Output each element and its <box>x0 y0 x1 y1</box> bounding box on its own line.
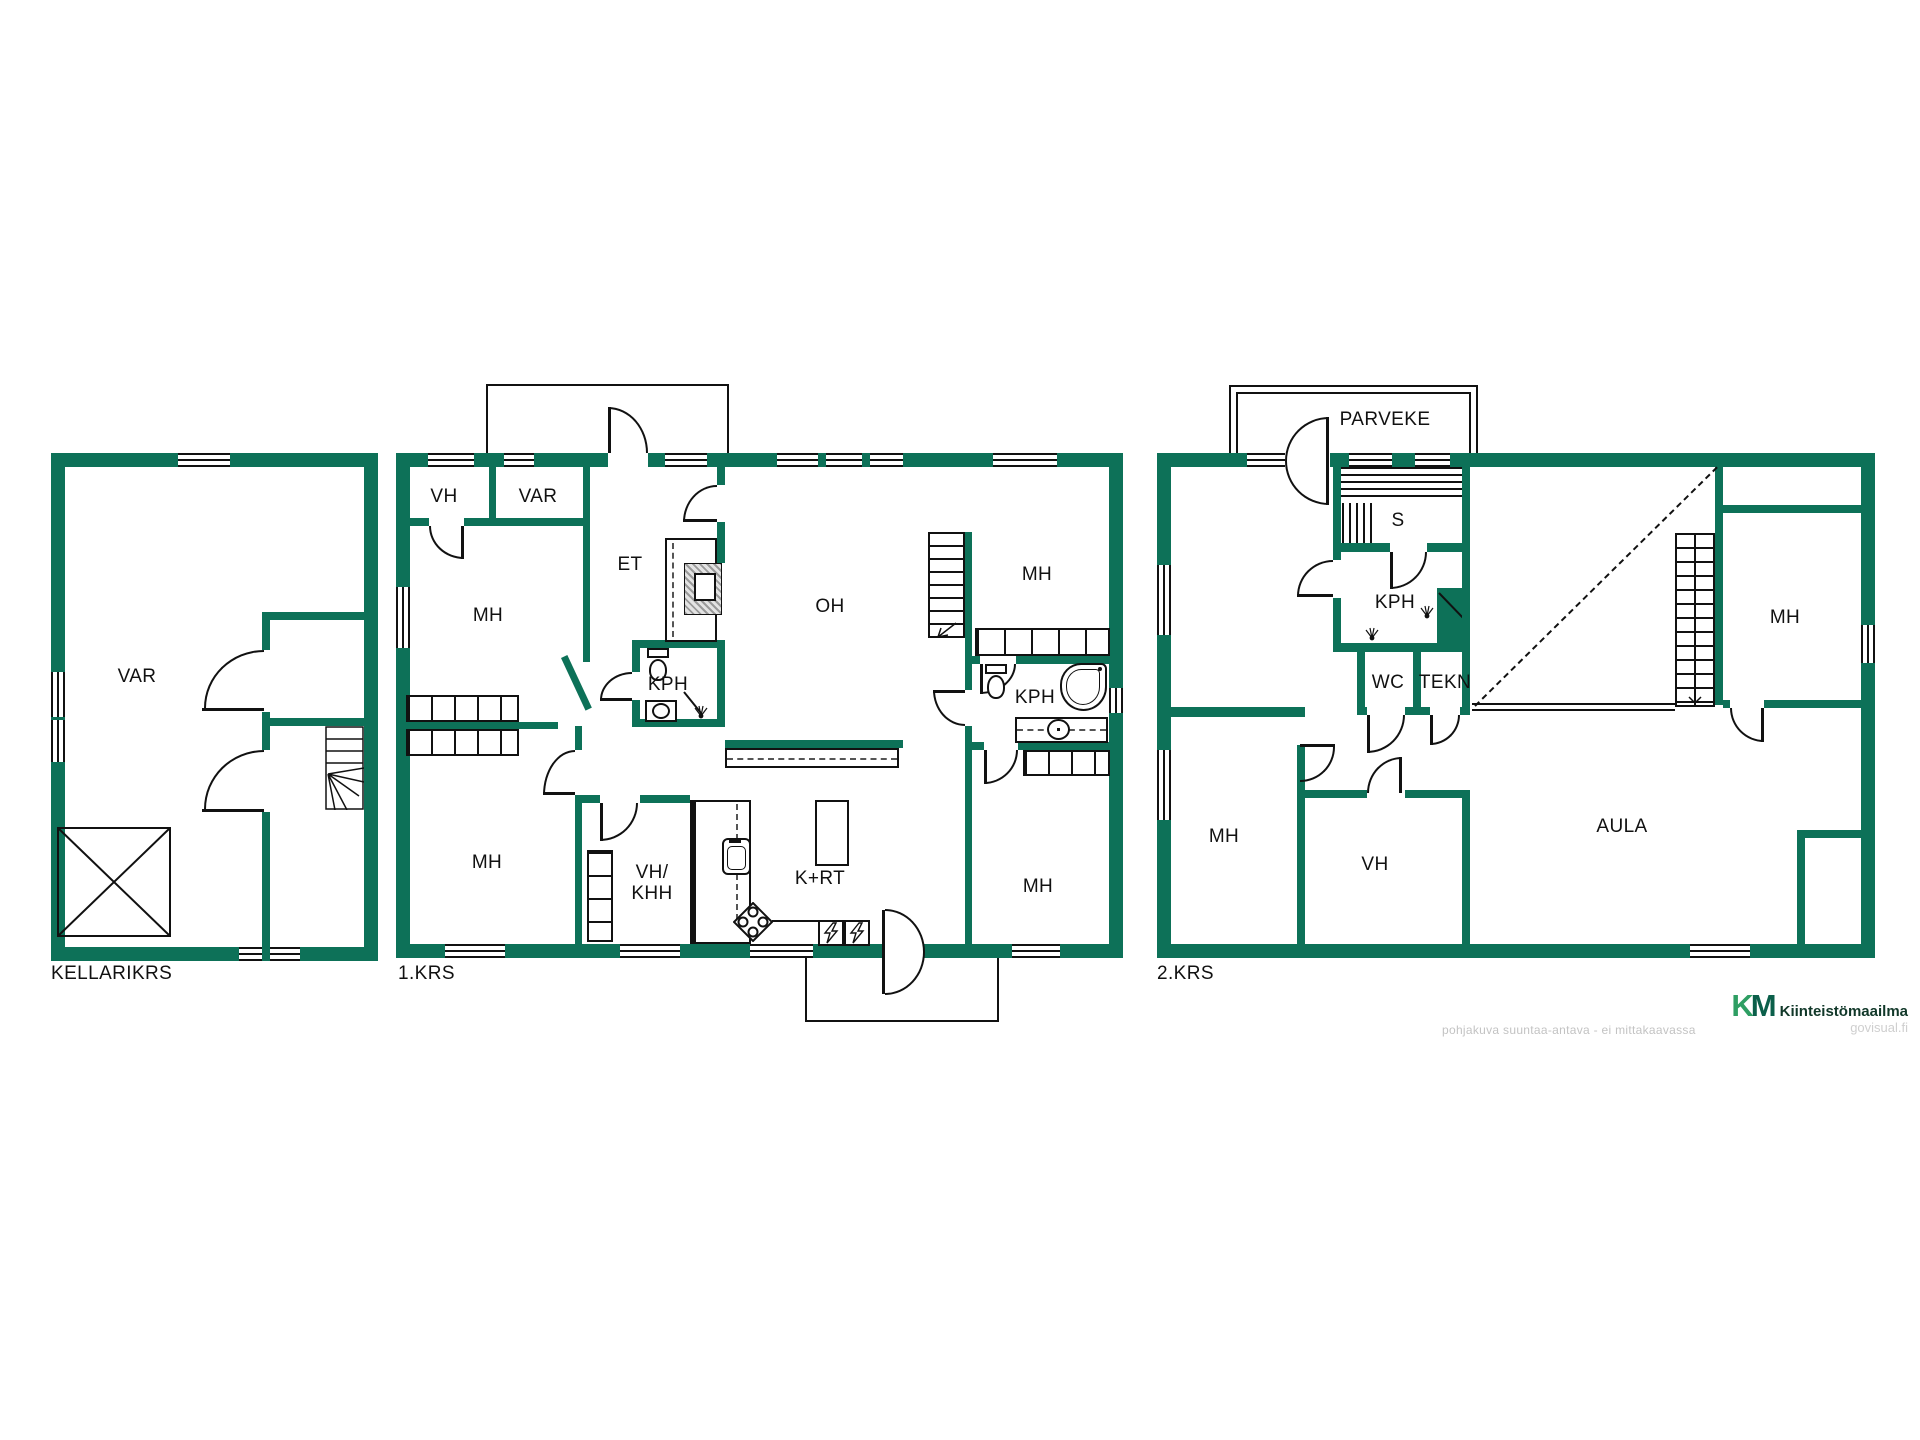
wall <box>406 722 558 729</box>
room-label-mh-bottom-right: MH <box>1023 876 1053 898</box>
door-swing-icon <box>1367 757 1402 793</box>
fireplace-flue <box>694 573 716 601</box>
window <box>396 587 410 648</box>
wall <box>262 612 378 620</box>
wall <box>1333 643 1470 652</box>
window <box>1247 453 1287 467</box>
storage-marking-icon <box>57 827 171 937</box>
room-label-tekn: TEKN <box>1419 672 1471 694</box>
door-opening <box>965 690 972 726</box>
wardrobe <box>406 729 519 756</box>
wall <box>51 947 378 961</box>
room-label-vh-khh-2: KHH <box>631 883 672 905</box>
door-swing-icon <box>600 803 638 841</box>
floor-edge-line <box>1472 703 1675 705</box>
room-label-vh: VH <box>430 486 457 508</box>
wall <box>717 640 725 727</box>
room-label-sauna: S <box>1391 510 1404 532</box>
door-leaf <box>1326 417 1329 505</box>
door-opening <box>575 750 582 795</box>
floor-plan-second: PARVEKE S KPH WC TEKN MH MH VH AULA <box>1157 453 1875 958</box>
window <box>1861 625 1875 663</box>
door-opening <box>1730 700 1764 708</box>
wardrobe <box>406 695 519 722</box>
room-label-aula: AULA <box>1596 816 1647 838</box>
window <box>1012 944 1060 958</box>
door-opening <box>429 518 464 526</box>
window <box>665 453 707 467</box>
room-label-var: VAR <box>118 666 157 688</box>
door-swing-icon <box>429 526 464 559</box>
room-label-mh-bottom-left: MH <box>1209 826 1239 848</box>
wall <box>1157 944 1875 958</box>
window <box>504 453 534 467</box>
wall <box>1157 707 1305 717</box>
floor-label-basement: KELLARIKRS <box>51 963 172 985</box>
wall <box>1333 466 1341 652</box>
door-swing-icon <box>204 650 264 708</box>
wall <box>1797 830 1805 944</box>
wall <box>561 655 592 711</box>
room-label-mh-right: MH <box>1770 607 1800 629</box>
wall <box>965 532 972 944</box>
electric-appliance-icon <box>847 922 867 944</box>
floor-label-second: 2.KRS <box>1157 963 1214 985</box>
room-label-var: VAR <box>519 486 558 508</box>
door-swing-icon <box>1297 560 1333 596</box>
brand-name: Kiinteistömaailma <box>1780 1003 1908 1020</box>
toilet-tank <box>647 648 669 658</box>
window <box>445 944 505 958</box>
window <box>1109 688 1123 713</box>
window <box>1349 453 1392 467</box>
door-swing-icon <box>1367 715 1405 753</box>
wall <box>270 718 378 726</box>
wall <box>489 467 496 518</box>
brand-logo-k: K <box>1731 988 1750 1023</box>
room-label-kph: KPH <box>1375 592 1415 614</box>
stove-icon <box>733 902 773 942</box>
window <box>777 453 903 467</box>
disclaimer-text: pohjakuva suuntaa-antava - ei mittakaava… <box>1442 1023 1696 1037</box>
wall <box>1800 830 1875 838</box>
brand-lockup: KMKiinteistömaailma govisual.fi <box>1668 988 1908 1035</box>
window <box>51 720 65 762</box>
upper-cabinet-dashed <box>727 758 897 760</box>
shower-icon <box>1364 627 1380 641</box>
stair-direction-arrow-icon <box>930 621 960 643</box>
kitchen-island <box>815 800 849 866</box>
wall <box>583 467 590 662</box>
room-label-vh-khh-1: VH/ <box>636 862 669 884</box>
floor-plan-basement: VAR <box>51 453 378 961</box>
wall <box>1861 453 1875 958</box>
winder-stairs-icon <box>325 726 364 810</box>
room-label-kph-right: KPH <box>1015 687 1055 709</box>
wall <box>1157 453 1171 958</box>
door-swing-icon <box>1300 747 1335 782</box>
kitchen-sink-basin <box>727 846 746 870</box>
wall <box>1357 652 1365 707</box>
window <box>1157 750 1171 820</box>
door-swing-icon <box>933 690 965 726</box>
window <box>51 672 65 717</box>
window <box>1690 944 1750 958</box>
stair-direction-arrow-icon <box>1683 689 1707 707</box>
door-opening <box>1333 560 1341 598</box>
door-swing-icon <box>1730 708 1764 742</box>
window-mullion <box>862 453 870 467</box>
room-label-mh-left: MH <box>473 605 503 627</box>
room-label-oh: OH <box>815 596 844 618</box>
sauna-stove-guard <box>1335 503 1375 545</box>
faucet <box>1098 667 1102 671</box>
room-label-mh-top-right: MH <box>1022 564 1052 586</box>
floor-plan-first: VH VAR ET OH MH KPH MH KPH MH VH/ KHH K+… <box>396 453 1123 958</box>
door-swing-icon <box>1430 715 1460 745</box>
room-label-wc: WC <box>1372 672 1404 694</box>
electric-appliance-icon <box>821 922 841 944</box>
window <box>178 453 230 467</box>
door-leaf <box>202 708 264 711</box>
wall <box>725 740 903 748</box>
drain <box>1057 728 1060 731</box>
toilet-tank <box>985 664 1007 674</box>
room-label-mh-bottom-left: MH <box>472 852 502 874</box>
window <box>993 453 1057 467</box>
door-opening <box>608 453 648 467</box>
wall <box>1723 505 1862 513</box>
room-label-vh: VH <box>1361 854 1388 876</box>
floor-label-first: 1.KRS <box>398 963 455 985</box>
window <box>620 944 680 958</box>
wall <box>1462 790 1470 945</box>
door-swing-icon <box>1390 552 1427 589</box>
cabinet-column <box>587 850 613 942</box>
door-opening <box>1367 707 1405 715</box>
door-opening <box>1430 707 1460 715</box>
door-opening <box>600 795 640 803</box>
door-opening <box>984 742 1018 750</box>
window <box>750 944 813 958</box>
door-swing-icon <box>543 750 575 795</box>
room-label-kph-small: KPH <box>648 674 688 696</box>
door-swing-icon <box>683 485 717 522</box>
floor-edge-line <box>1472 709 1675 711</box>
door-opening <box>980 656 1016 664</box>
brand-logo: KMKiinteistömaailma <box>1668 988 1908 1024</box>
corner-bathtub-inner <box>1066 669 1100 705</box>
door-swing-icon <box>600 672 632 700</box>
wall <box>1715 465 1723 705</box>
door-swing-icon <box>204 750 264 809</box>
window-mullion <box>818 453 826 467</box>
wardrobe <box>975 628 1110 656</box>
bathroom-sink-bowl <box>652 703 670 719</box>
fireplace-dashed-line <box>672 543 674 637</box>
wall <box>364 453 378 961</box>
shower-icon <box>1419 605 1435 619</box>
door-opening <box>632 672 640 700</box>
faucet <box>729 840 741 843</box>
door-opening <box>717 485 725 522</box>
room-label-et: ET <box>617 554 642 576</box>
stair-divider <box>1694 533 1696 707</box>
sauna-benches <box>1333 467 1469 501</box>
room-label-krt: K+RT <box>795 868 845 890</box>
door-leaf <box>202 809 264 812</box>
brand-logo-m: M <box>1751 988 1777 1023</box>
toilet-bowl <box>987 675 1005 699</box>
window <box>428 453 474 467</box>
wardrobe <box>1023 750 1110 776</box>
window <box>1157 565 1171 635</box>
window <box>1415 453 1450 467</box>
door-swing-icon <box>984 750 1018 784</box>
door-opening <box>1390 543 1427 552</box>
room-label-parveke: PARVEKE <box>1340 409 1431 431</box>
